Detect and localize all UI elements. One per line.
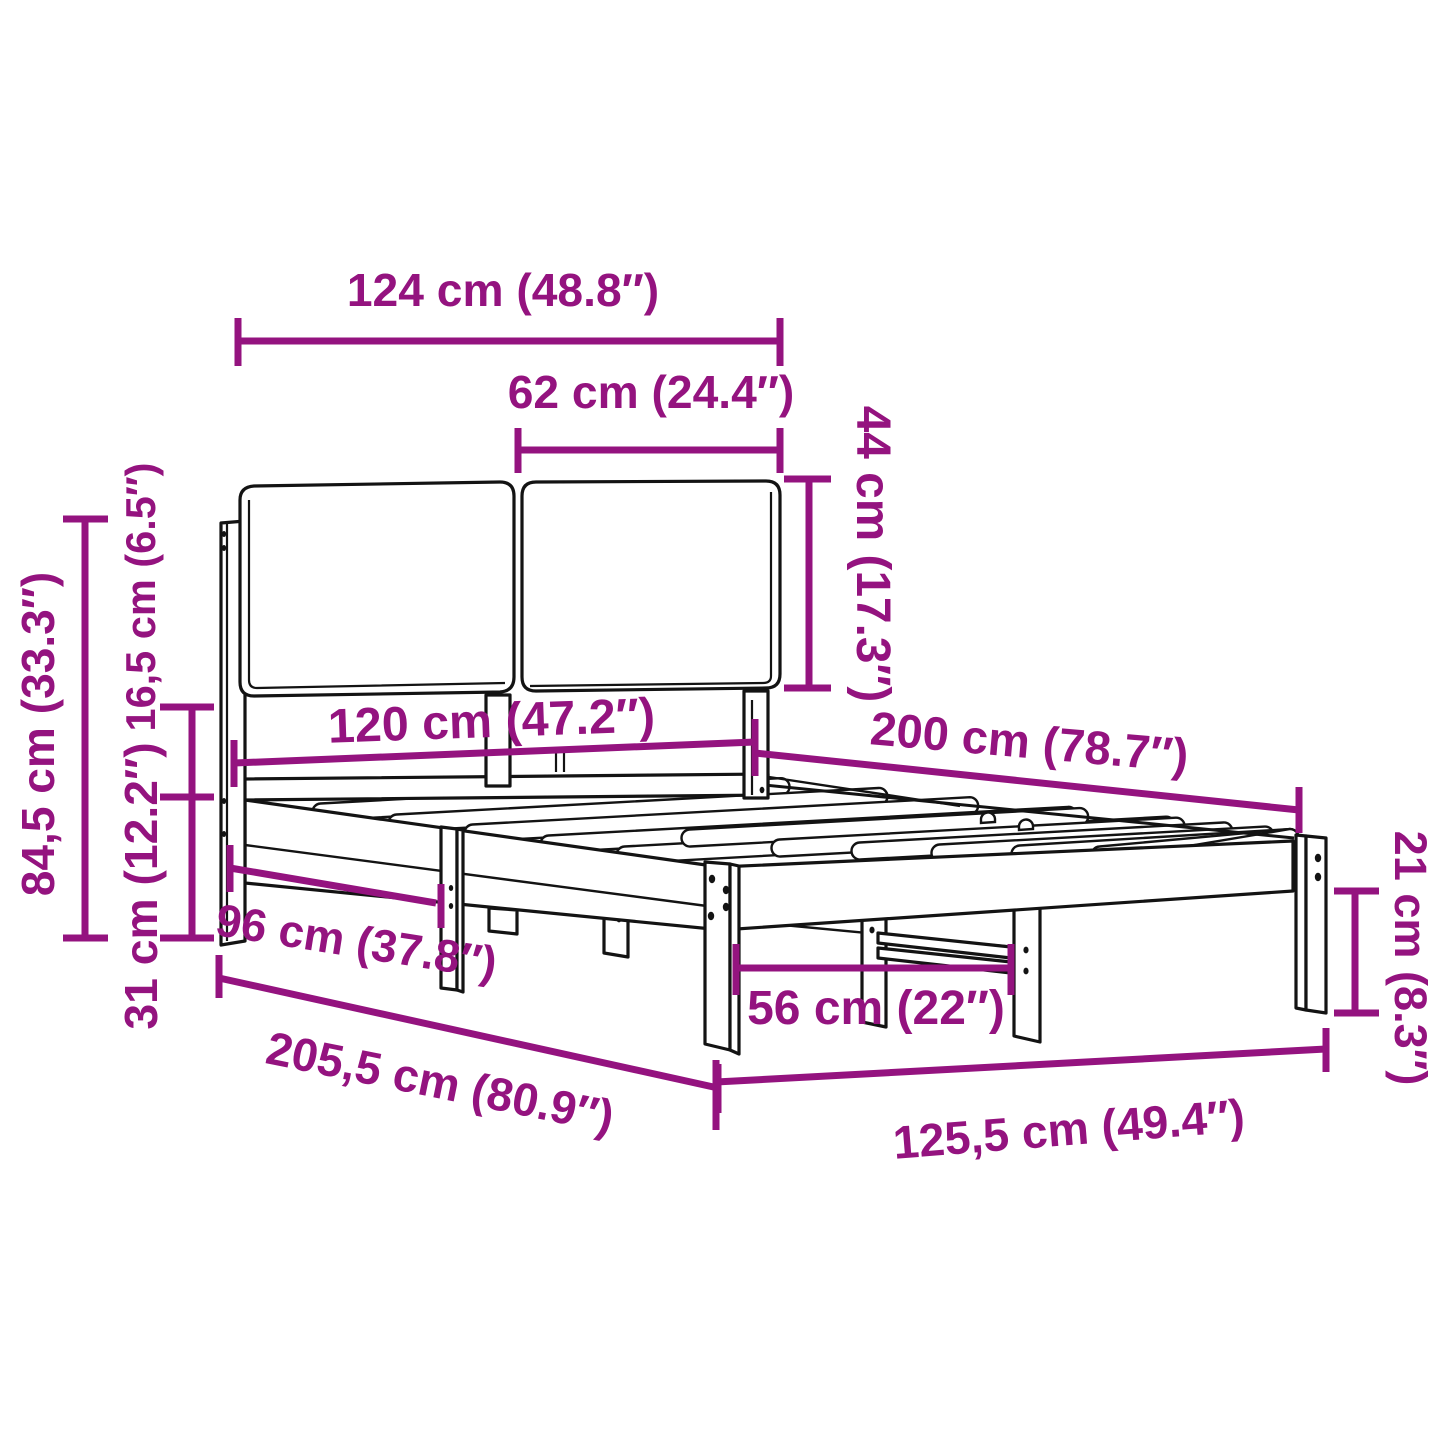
svg-text:84,5 cm (33.3″): 84,5 cm (33.3″) (12, 572, 64, 896)
svg-text:16,5 cm (6.5″): 16,5 cm (6.5″) (117, 462, 164, 731)
svg-text:124 cm (48.8″): 124 cm (48.8″) (347, 264, 659, 316)
svg-text:31 cm (12.2″): 31 cm (12.2″) (115, 742, 167, 1029)
svg-text:56 cm (22″): 56 cm (22″) (747, 982, 1005, 1035)
svg-text:62 cm (24.4″): 62 cm (24.4″) (508, 366, 795, 418)
svg-text:120 cm (47.2″): 120 cm (47.2″) (327, 688, 656, 753)
svg-text:21 cm (8.3″): 21 cm (8.3″) (1385, 831, 1436, 1086)
svg-text:44 cm (17.3″): 44 cm (17.3″) (846, 406, 899, 703)
